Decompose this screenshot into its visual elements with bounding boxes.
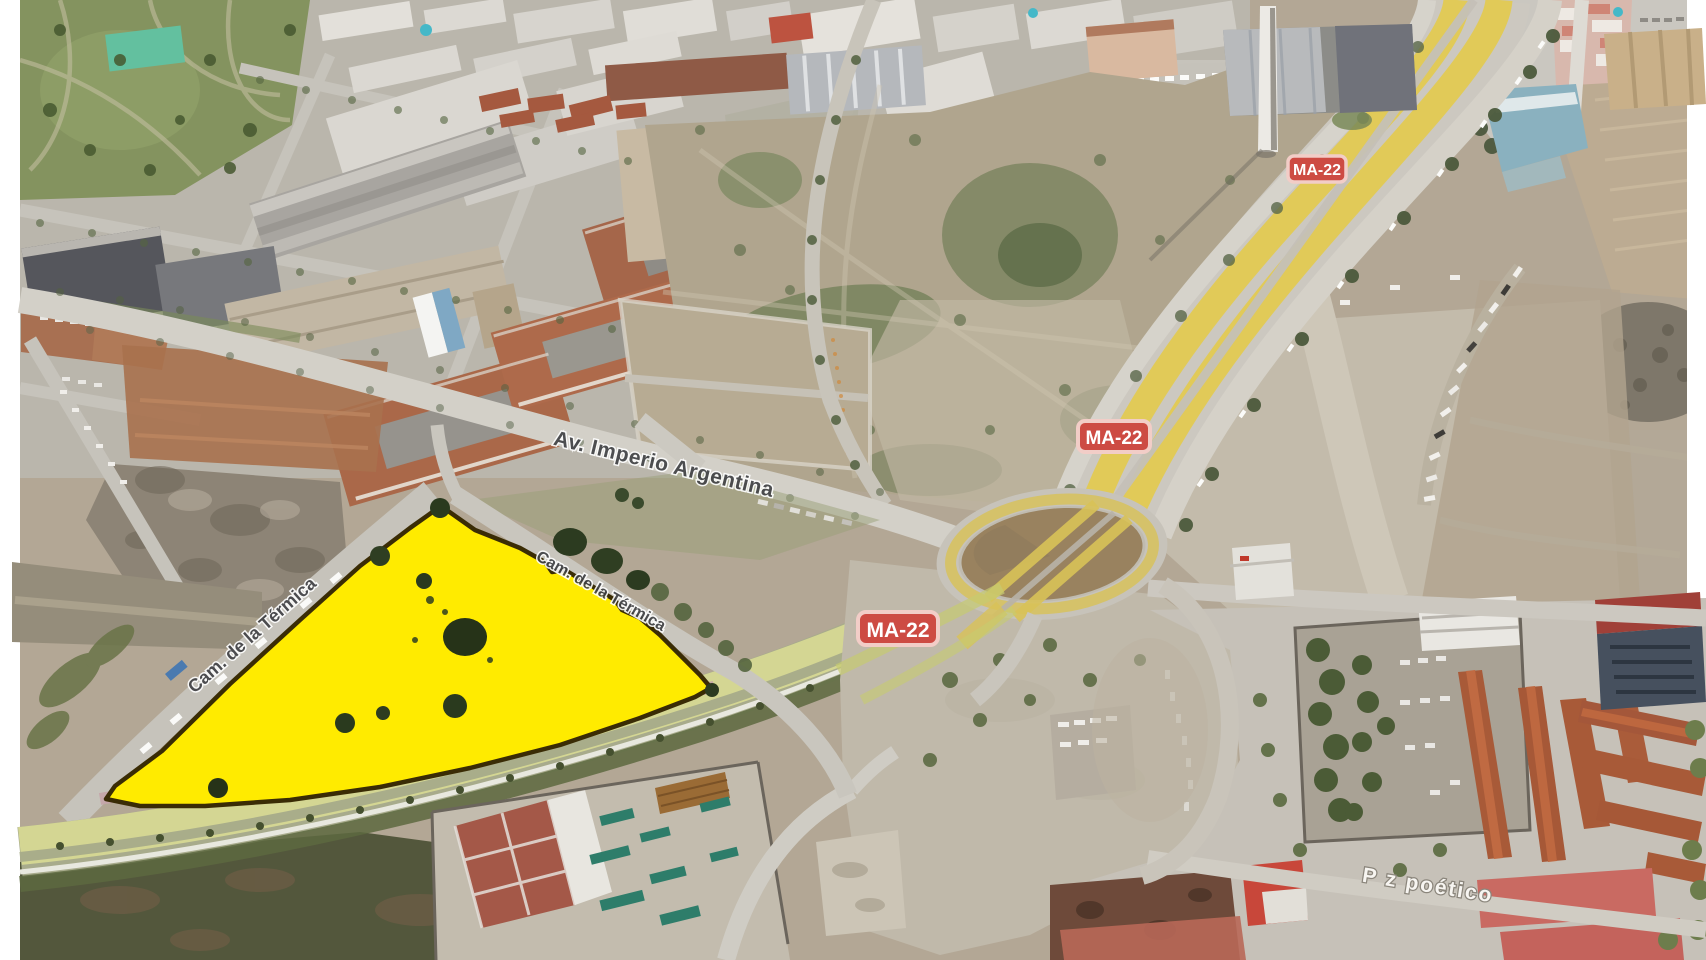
svg-text:MA-22: MA-22	[866, 619, 929, 642]
svg-text:MA-22: MA-22	[1085, 428, 1142, 449]
svg-text:MA-22: MA-22	[1293, 162, 1341, 179]
